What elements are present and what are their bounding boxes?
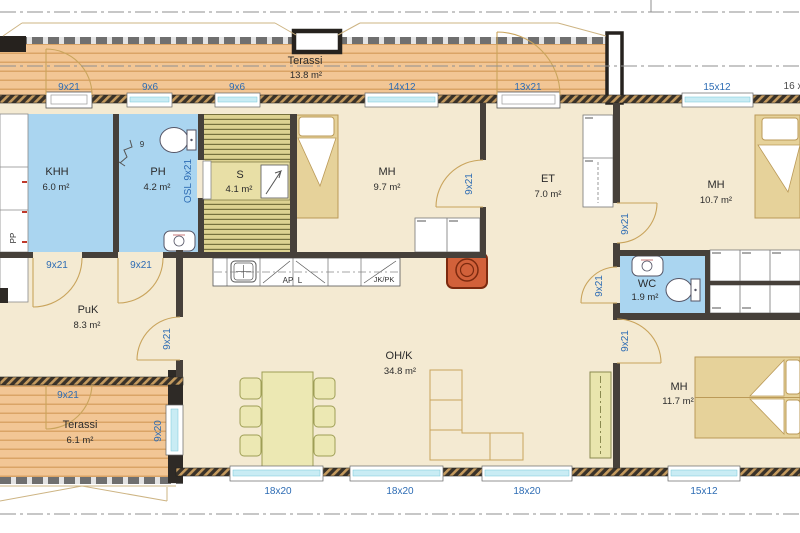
closet-et bbox=[583, 115, 613, 207]
label-opening-top-6: 15x12 bbox=[703, 82, 731, 93]
sink-ph-icon bbox=[164, 231, 195, 251]
svg-text:7.0 m²: 7.0 m² bbox=[535, 189, 562, 200]
bed-mh1 bbox=[295, 115, 338, 218]
svg-text:MH: MH bbox=[378, 166, 395, 178]
svg-text:6.0 m²: 6.0 m² bbox=[43, 182, 70, 193]
label-kitchen-l: L bbox=[298, 276, 303, 285]
terrace-post-center bbox=[294, 31, 340, 52]
sauna-door-leaf bbox=[197, 160, 211, 199]
bed-mh3 bbox=[695, 357, 800, 438]
label-opening-bottom-2: 18x20 bbox=[386, 486, 414, 497]
label-edge-dim: 16 x bbox=[784, 81, 800, 92]
svg-text:9.7 m²: 9.7 m² bbox=[374, 182, 401, 193]
sauna-stove-icon bbox=[261, 165, 288, 198]
svg-text:KHH: KHH bbox=[45, 166, 68, 178]
label-door-sauna: OSL 9x21 bbox=[183, 159, 194, 204]
label-drain-9: 9 bbox=[140, 140, 145, 149]
svg-text:4.2 m²: 4.2 m² bbox=[144, 182, 171, 193]
svg-text:34.8 m²: 34.8 m² bbox=[384, 366, 416, 377]
sink-wc-icon bbox=[632, 256, 663, 276]
label-door-puk: 9x21 bbox=[162, 328, 173, 350]
label-opening-top-1: 9x21 bbox=[58, 82, 80, 93]
window-18x20-3 bbox=[482, 466, 572, 481]
svg-text:PuK: PuK bbox=[78, 304, 99, 316]
kitchen-counter bbox=[213, 258, 400, 286]
dining-set bbox=[240, 372, 335, 467]
svg-text:PH: PH bbox=[150, 166, 165, 178]
svg-text:ET: ET bbox=[541, 173, 555, 185]
svg-text:8.3 m²: 8.3 m² bbox=[74, 320, 101, 331]
label-kitchen-jkpk: JK/PK bbox=[374, 275, 395, 284]
label-door-terrace: 9x21 bbox=[57, 390, 79, 401]
label-door-ph: 9x21 bbox=[130, 260, 152, 271]
toilet-wc-icon bbox=[666, 279, 700, 302]
fireplace bbox=[447, 253, 487, 288]
svg-text:OH/K: OH/K bbox=[386, 350, 414, 362]
label-pp: PP bbox=[9, 233, 18, 244]
svg-text:MH: MH bbox=[707, 179, 724, 191]
label-door-mh3: 9x21 bbox=[620, 330, 631, 352]
label-opening-top-5: 13x21 bbox=[514, 82, 542, 93]
door-9x21-top bbox=[46, 92, 92, 108]
sideboard bbox=[590, 372, 611, 458]
window-9x6-1 bbox=[127, 93, 172, 107]
label-opening-top-3: 9x6 bbox=[229, 82, 246, 93]
window-15x12-bottom bbox=[668, 466, 740, 481]
svg-text:4.1 m²: 4.1 m² bbox=[226, 184, 253, 195]
tick-mark bbox=[22, 211, 27, 213]
svg-text:13.8 m²: 13.8 m² bbox=[290, 70, 322, 81]
label-window-9x20: 9x20 bbox=[153, 420, 164, 442]
utility-column bbox=[0, 114, 28, 302]
svg-text:WC: WC bbox=[638, 278, 656, 290]
label-opening-bottom-4: 15x12 bbox=[690, 486, 718, 497]
svg-text:S: S bbox=[236, 169, 243, 181]
label-kitchen-ap: AP bbox=[283, 276, 294, 285]
svg-text:1.9 m²: 1.9 m² bbox=[632, 292, 659, 303]
svg-text:11.7 m²: 11.7 m² bbox=[662, 396, 694, 407]
svg-text:10.7 m²: 10.7 m² bbox=[700, 195, 732, 206]
window-14x12 bbox=[365, 93, 438, 107]
label-opening-bottom-3: 18x20 bbox=[513, 486, 541, 497]
floor-plan-drawing: Terassi 13.8 m² KHH 6.0 m² PH 4.2 m² S 4… bbox=[0, 0, 800, 533]
tick-mark bbox=[22, 241, 27, 243]
tick-mark bbox=[22, 181, 27, 183]
floor-plan: Terassi 13.8 m² KHH 6.0 m² PH 4.2 m² S 4… bbox=[0, 0, 800, 533]
svg-text:Terassi: Terassi bbox=[63, 419, 98, 431]
svg-text:MH: MH bbox=[670, 381, 687, 393]
svg-text:Terassi: Terassi bbox=[288, 55, 323, 67]
label-opening-top-2: 9x6 bbox=[142, 82, 159, 93]
terrace-post-left bbox=[0, 36, 26, 52]
closet-mh1 bbox=[415, 218, 480, 252]
window-18x20-1 bbox=[230, 466, 323, 481]
bed-mh2 bbox=[755, 115, 800, 218]
svg-text:6.1 m²: 6.1 m² bbox=[67, 435, 94, 446]
label-door-mh1: 9x21 bbox=[464, 173, 475, 195]
window-9x6-2 bbox=[215, 93, 260, 107]
room-khh bbox=[28, 114, 113, 252]
window-15x12-top bbox=[682, 93, 753, 107]
label-opening-top-4: 14x12 bbox=[388, 82, 416, 93]
label-door-mh2: 9x21 bbox=[620, 213, 631, 235]
label-door-wc: 9x21 bbox=[594, 275, 605, 297]
door-13x21-top bbox=[497, 92, 560, 108]
label-opening-bottom-1: 18x20 bbox=[264, 486, 292, 497]
window-9x20-terrace bbox=[166, 405, 183, 455]
window-18x20-2 bbox=[350, 466, 443, 481]
label-door-khh: 9x21 bbox=[46, 260, 68, 271]
toilet-ph-icon bbox=[160, 128, 196, 153]
terrace-wall-right bbox=[607, 33, 622, 103]
